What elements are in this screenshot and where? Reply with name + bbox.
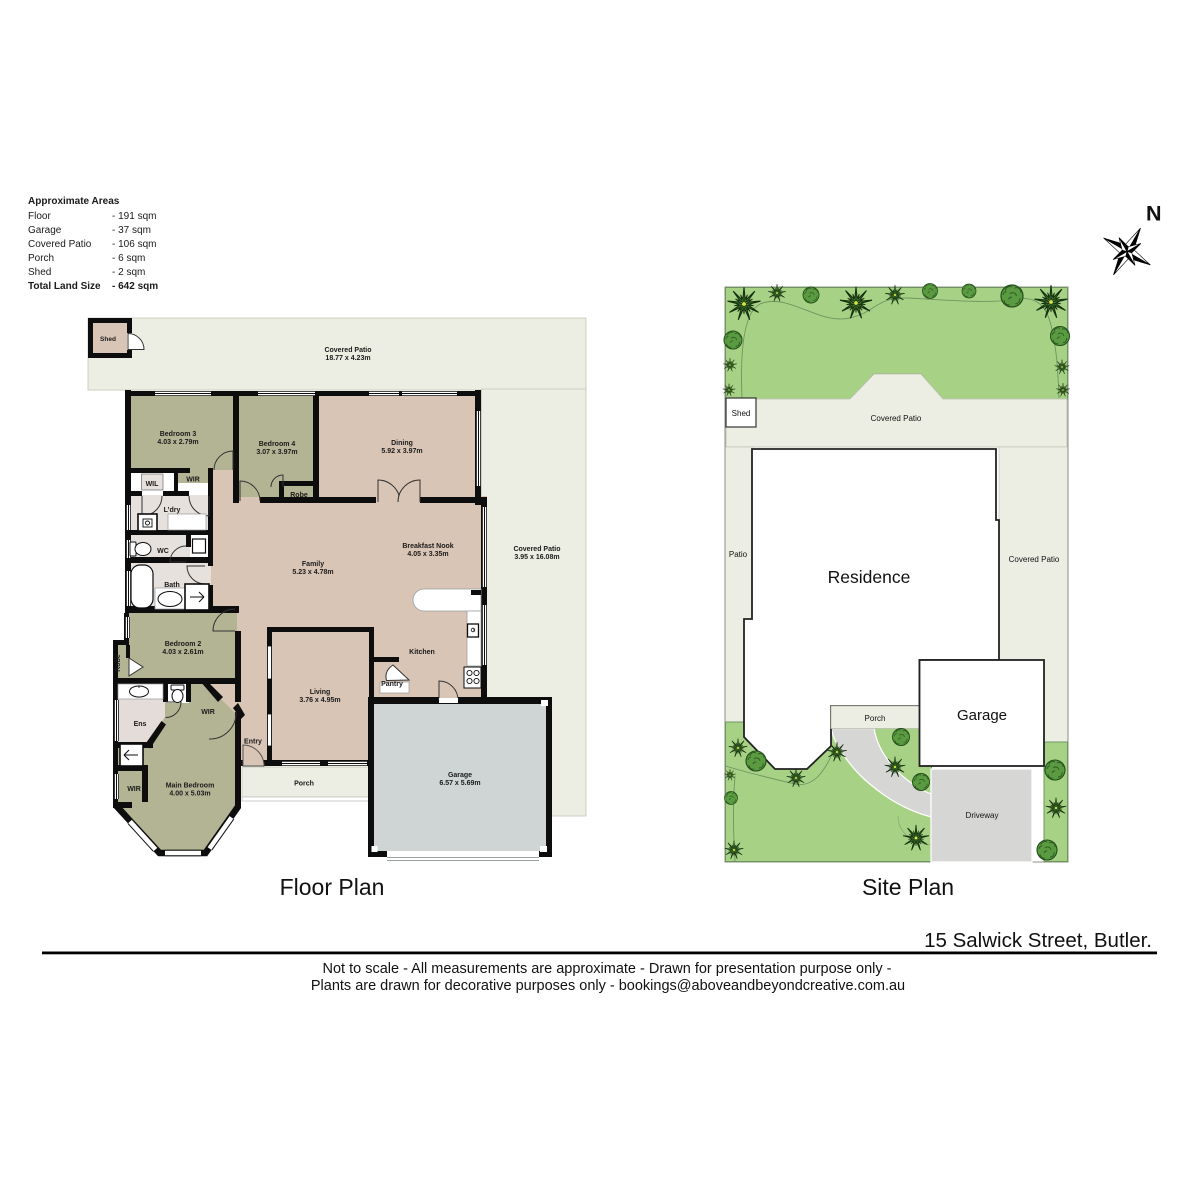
svg-text:Covered Patio: Covered Patio <box>28 239 92 250</box>
svg-text:Living: Living <box>310 689 331 696</box>
svg-text:3.76 x 4.95m: 3.76 x 4.95m <box>299 697 340 704</box>
svg-text:WIR: WIR <box>201 709 215 716</box>
svg-text:Kitchen: Kitchen <box>409 649 435 656</box>
svg-text:3.07 x 3.97m: 3.07 x 3.97m <box>256 449 297 456</box>
svg-text:Not to scale - All measurement: Not to scale - All measurements are appr… <box>323 961 892 977</box>
svg-text:Entry: Entry <box>244 739 262 746</box>
svg-text:Site Plan: Site Plan <box>862 874 954 900</box>
svg-text:Covered Patio: Covered Patio <box>871 414 922 423</box>
svg-text:L’dry: L’dry <box>164 507 181 514</box>
svg-text:Bedroom 2: Bedroom 2 <box>165 641 202 648</box>
svg-text:5.92 x 3.97m: 5.92 x 3.97m <box>381 448 422 455</box>
svg-text:WIR: WIR <box>186 477 200 484</box>
svg-text:- 191 sqm: - 191 sqm <box>112 211 156 222</box>
svg-text:Bedroom 4: Bedroom 4 <box>259 441 296 448</box>
svg-text:Covered Patio: Covered Patio <box>1009 555 1060 564</box>
svg-text:Bedroom 3: Bedroom 3 <box>160 431 197 438</box>
svg-text:Family: Family <box>302 561 324 568</box>
svg-text:3.95 x 16.08m: 3.95 x 16.08m <box>514 554 559 561</box>
svg-text:WIR: WIR <box>127 786 141 793</box>
svg-text:Main Bedroom: Main Bedroom <box>166 783 215 790</box>
svg-text:Shed: Shed <box>732 409 751 418</box>
svg-text:WC: WC <box>157 548 169 555</box>
svg-text:Ens: Ens <box>134 721 147 728</box>
svg-text:Bath: Bath <box>164 582 180 589</box>
svg-text:Porch: Porch <box>865 714 886 723</box>
svg-text:Robe: Robe <box>115 654 122 672</box>
svg-text:Floor Plan: Floor Plan <box>280 874 385 900</box>
svg-text:Patio: Patio <box>729 550 748 559</box>
svg-text:Porch: Porch <box>294 781 314 788</box>
svg-text:Residence: Residence <box>828 567 911 587</box>
svg-text:5.23 x 4.78m: 5.23 x 4.78m <box>292 569 333 576</box>
svg-text:Driveway: Driveway <box>966 811 999 820</box>
svg-text:Dining: Dining <box>391 440 413 447</box>
svg-text:Covered Patio: Covered Patio <box>513 546 560 553</box>
svg-text:4.05 x 3.35m: 4.05 x 3.35m <box>407 551 448 558</box>
svg-text:Covered Patio: Covered Patio <box>324 347 371 354</box>
svg-text:Shed: Shed <box>28 267 51 278</box>
svg-text:18.77 x 4.23m: 18.77 x 4.23m <box>325 355 370 362</box>
svg-text:Shed: Shed <box>100 336 116 343</box>
svg-text:WIL: WIL <box>146 481 160 488</box>
svg-text:- 2 sqm: - 2 sqm <box>112 267 145 278</box>
svg-text:N: N <box>1146 202 1162 226</box>
svg-text:Plants are drawn for decorativ: Plants are drawn for decorative purposes… <box>311 978 905 994</box>
svg-text:Garage: Garage <box>448 772 472 779</box>
svg-text:Approximate Areas: Approximate Areas <box>28 196 120 207</box>
svg-text:Garage: Garage <box>957 707 1007 724</box>
svg-text:Porch: Porch <box>28 253 54 264</box>
svg-text:- 106 sqm: - 106 sqm <box>112 239 156 250</box>
svg-text:Pantry: Pantry <box>381 681 403 688</box>
svg-text:Floor: Floor <box>28 211 51 222</box>
svg-text:- 6 sqm: - 6 sqm <box>112 253 145 264</box>
svg-text:Total Land Size: Total Land Size <box>28 281 101 292</box>
svg-text:4.03 x 2.79m: 4.03 x 2.79m <box>157 439 198 446</box>
svg-text:15 Salwick Street, Butler.: 15 Salwick Street, Butler. <box>924 929 1152 952</box>
svg-text:Robe: Robe <box>290 492 308 499</box>
svg-text:- 642 sqm: - 642 sqm <box>112 281 158 292</box>
svg-text:- 37 sqm: - 37 sqm <box>112 225 151 236</box>
svg-text:Garage: Garage <box>28 225 62 236</box>
svg-text:Breakfast Nook: Breakfast Nook <box>402 543 453 550</box>
svg-text:4.03 x 2.61m: 4.03 x 2.61m <box>162 649 203 656</box>
svg-text:6.57 x 5.69m: 6.57 x 5.69m <box>439 780 480 787</box>
svg-text:4.00 x 5.03m: 4.00 x 5.03m <box>169 791 210 798</box>
